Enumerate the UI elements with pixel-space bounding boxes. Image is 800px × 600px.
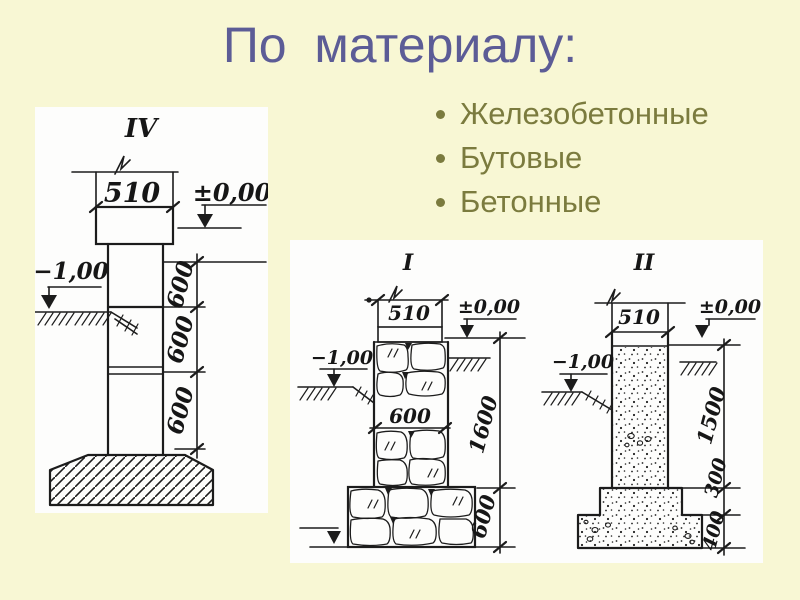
top-width-dimension: 510 [595, 289, 685, 337]
segment-600-label: 600 [161, 313, 200, 366]
level-zero-label: ±0,00 [458, 296, 520, 318]
list-item: Бутовые [436, 136, 709, 180]
level-zero-label: ±0,00 [699, 296, 761, 318]
footing-block [50, 455, 213, 505]
list-item-label: Бутовые [460, 140, 582, 176]
segment-600-label: 600 [161, 258, 200, 311]
drawing-label-iv: IV [124, 114, 160, 144]
height-300-label: 300 [700, 456, 732, 500]
drawing-label-ii: II [633, 250, 655, 276]
level-minus-label: −1,00 [311, 347, 373, 369]
drawing-panel-i-ii: I 510 [290, 240, 763, 563]
level-zero-label: ±0,00 [193, 178, 268, 207]
foundation-drawing-i: I 510 [298, 250, 525, 553]
level-minus-mark: −1,00 [311, 347, 373, 387]
bullet-icon [436, 198, 445, 207]
list-item: Железобетонные [436, 92, 709, 136]
list-item: Бетонные [436, 180, 709, 224]
height-1600-label: 1600 [463, 393, 502, 456]
stepped-footing [578, 488, 702, 548]
foundation-drawing-iv: IV 510 ±0,00 [35, 107, 268, 513]
width-600-label: 600 [389, 404, 431, 428]
drawing-panel-iv: IV 510 ±0,00 [35, 107, 268, 513]
bullet-icon [436, 110, 445, 119]
width-510-label: 510 [104, 178, 161, 209]
level-minus-mark: −1,00 [35, 258, 109, 309]
mid-width-dimension: 600 [369, 400, 451, 433]
width-510-label: 510 [618, 305, 660, 329]
foundation-drawing-ii: II 510 [542, 250, 761, 555]
level-zero-mark: ±0,00 [695, 296, 761, 338]
level-zero-mark: ±0,00 [178, 178, 268, 228]
level-minus-mark: −1,00 [552, 351, 614, 392]
foundation-drawings-i-ii: I 510 [290, 240, 763, 563]
cap-block [378, 327, 442, 342]
height-dimension: 600 600 600 [161, 254, 266, 458]
level-minus-label: −1,00 [35, 258, 109, 285]
page-title: По материалу: [0, 16, 800, 74]
ground-line [35, 312, 138, 335]
slide: По материалу: Железобетонные Бутовые Бет… [0, 0, 800, 600]
top-width-dimension: 510 [72, 156, 179, 212]
height-dimension: 1600 600 [445, 332, 525, 553]
concrete-wall [612, 332, 668, 488]
level-minus-label: −1,00 [552, 351, 614, 373]
level-zero-mark: ±0,00 [458, 296, 520, 338]
top-width-dimension: 510 [365, 286, 448, 327]
drawing-label-i: I [402, 250, 414, 276]
slope-hatch [356, 387, 373, 404]
height-1500-label: 1500 [691, 384, 730, 447]
footing-bottom-level-mark [300, 528, 341, 544]
list-item-label: Бетонные [460, 184, 601, 220]
segment-600-label: 600 [161, 384, 200, 437]
material-list: Железобетонные Бутовые Бетонные [436, 92, 709, 224]
height-600-label: 600 [465, 492, 501, 541]
list-item-label: Железобетонные [460, 96, 709, 132]
bullet-icon [436, 154, 445, 163]
width-510-label: 510 [388, 301, 430, 325]
